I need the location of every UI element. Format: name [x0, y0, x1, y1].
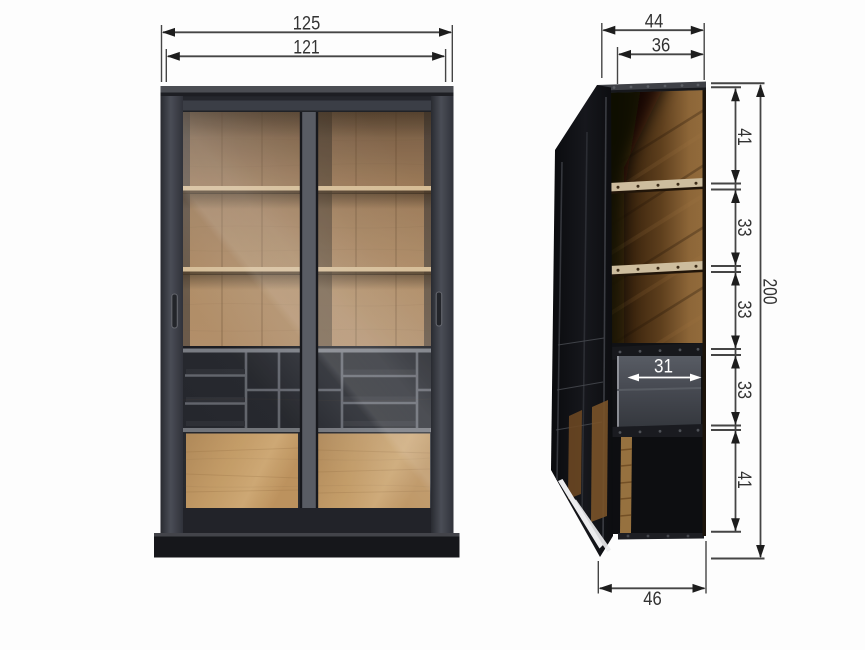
svg-text:33: 33: [733, 301, 754, 319]
svg-text:125: 125: [293, 14, 321, 35]
svg-text:41: 41: [733, 128, 754, 146]
svg-text:33: 33: [733, 219, 754, 237]
svg-text:200: 200: [759, 279, 780, 305]
svg-text:44: 44: [645, 12, 664, 33]
svg-text:121: 121: [293, 38, 320, 59]
svg-text:46: 46: [643, 589, 662, 610]
svg-text:41: 41: [733, 471, 754, 489]
svg-text:33: 33: [733, 381, 754, 399]
svg-text:31: 31: [654, 356, 673, 378]
svg-text:36: 36: [652, 36, 671, 57]
